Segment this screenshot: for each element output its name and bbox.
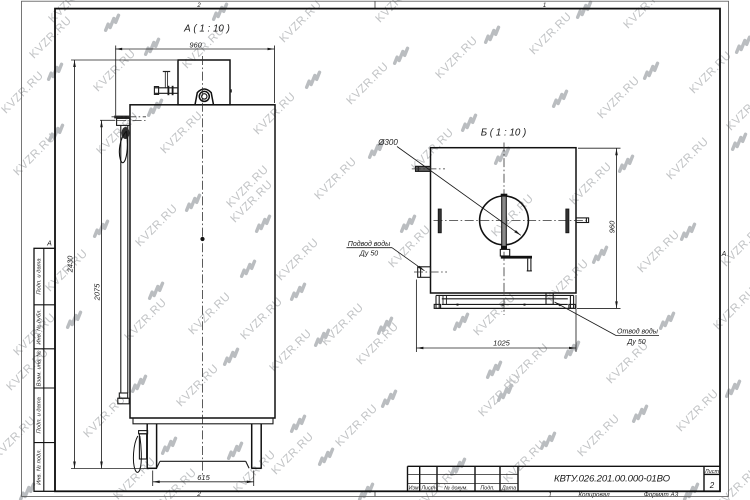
svg-text:Дата: Дата [501,486,516,492]
svg-text:А: А [46,241,52,248]
svg-text:Подп. и дата: Подп. и дата [37,258,43,295]
svg-text:615: 615 [197,473,210,482]
svg-text:А ( 1 : 10 ): А ( 1 : 10 ) [183,24,230,35]
svg-text:2075: 2075 [93,283,102,302]
svg-text:Отвод воды: Отвод воды [617,328,659,336]
svg-text:Взам. инв. №: Взам. инв. № [37,350,43,386]
svg-text:960: 960 [189,41,202,50]
svg-text:Б ( 1 : 10 ): Б ( 1 : 10 ) [481,128,527,139]
svg-text:А: А [721,251,727,258]
svg-text:Подп.: Подп. [480,486,494,492]
svg-text:Инв. № дубл.: Инв. № дубл. [37,309,43,345]
svg-text:2: 2 [709,481,715,490]
svg-text:Лист: Лист [420,486,435,492]
svg-text:2430: 2430 [66,255,75,274]
svg-text:Подп. и дата: Подп. и дата [37,396,43,433]
svg-text:Подвод воды: Подвод воды [348,240,391,248]
svg-text:1: 1 [548,491,552,498]
svg-text:Инв. № подл.: Инв. № подл. [37,449,43,485]
svg-text:Изм: Изм [409,485,419,491]
svg-text:Формат А3: Формат А3 [644,492,679,499]
svg-text:Копировал: Копировал [578,492,610,499]
svg-text:Ду 50: Ду 50 [626,339,645,346]
svg-text:№ докум.: № докум. [444,486,468,492]
svg-text:Ду 50: Ду 50 [359,251,378,258]
svg-text:1025: 1025 [493,339,511,348]
svg-text:Лист: Лист [704,469,720,475]
svg-text:960: 960 [608,220,617,233]
svg-text:2: 2 [196,491,201,498]
svg-text:Ø300: Ø300 [377,138,398,147]
svg-text:КВТУ.026.201.00.000-01ВО: КВТУ.026.201.00.000-01ВО [554,474,671,485]
